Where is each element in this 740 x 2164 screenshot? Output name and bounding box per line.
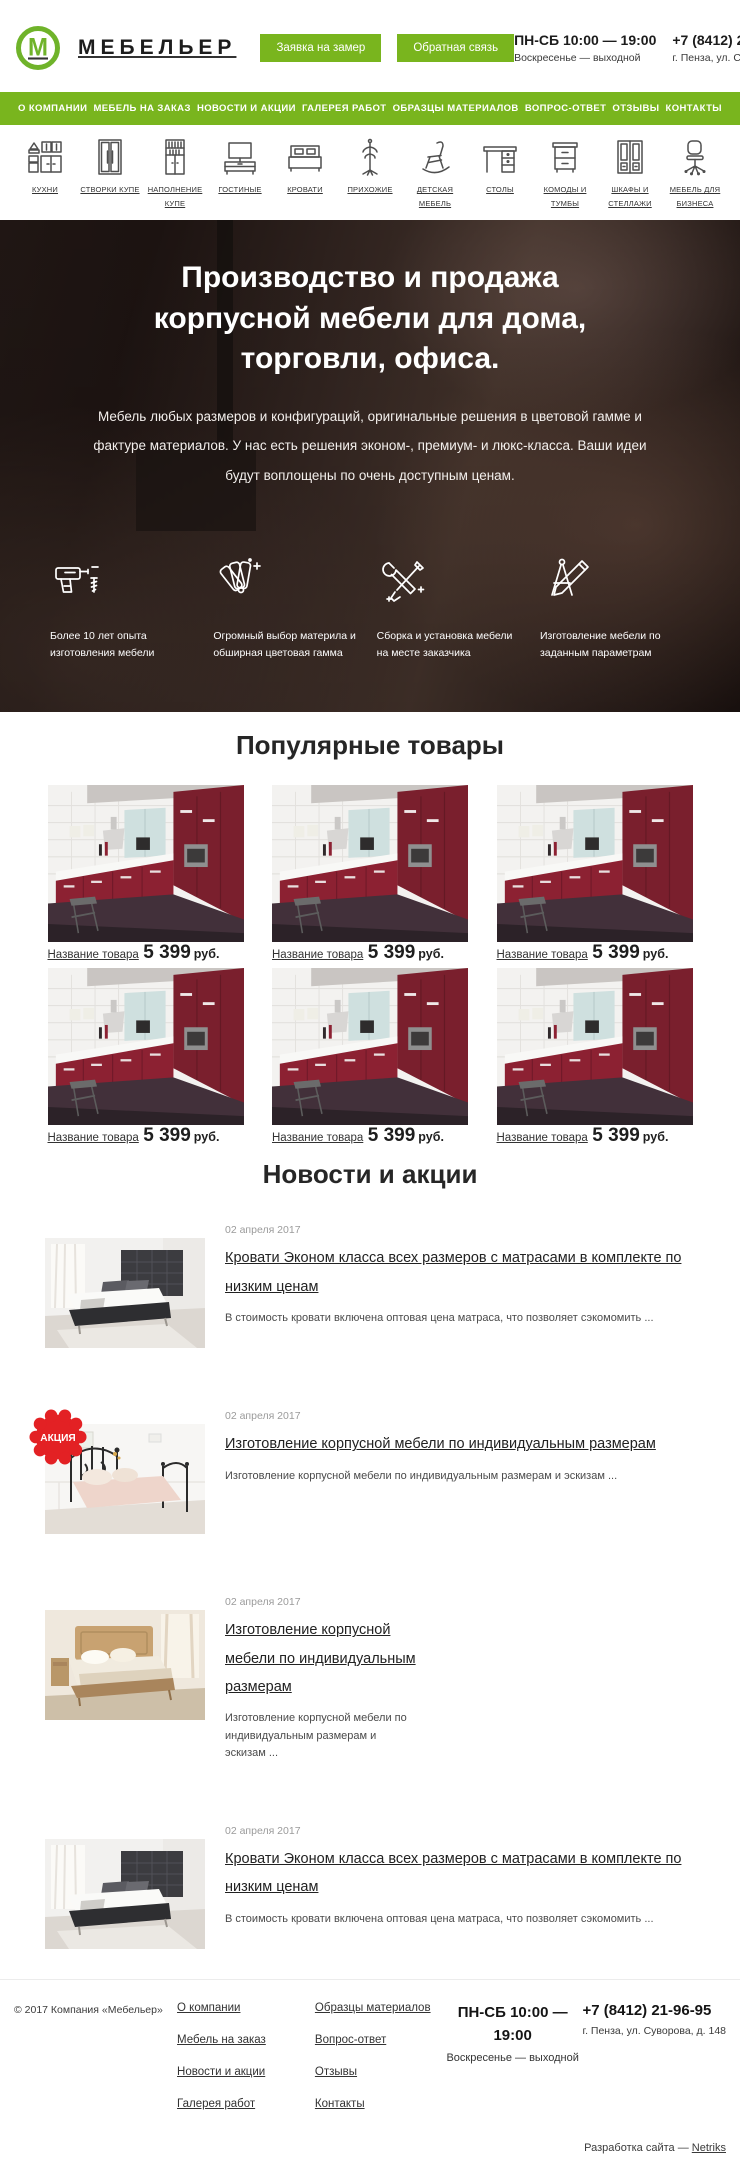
product-price: 5 399руб. — [368, 1128, 444, 1145]
popular-products-title: Популярные товары — [0, 730, 740, 761]
category-label: ДЕТСКАЯ МЕБЕЛЬ — [404, 183, 466, 210]
promo-badge-text: АКЦИЯ — [40, 1433, 75, 1444]
feature-label: Более 10 лет опыта изготовления мебели — [50, 628, 200, 664]
category-label: КУХНИ — [32, 183, 58, 197]
feature-label: Сборка и установка мебели на месте заказ… — [377, 628, 527, 664]
category-hallways[interactable]: ПРИХОЖИЕ — [339, 137, 401, 210]
footer-phone: +7 (8412) 21-96-95 — [583, 2002, 726, 2019]
footer-link-reviews[interactable]: Отзывы — [315, 2066, 453, 2078]
product-card[interactable]: Название товара 5 399руб. — [272, 785, 468, 942]
news-photo — [45, 1610, 205, 1720]
product-price: 5 399руб. — [368, 945, 444, 962]
product-name-link[interactable]: Название товара — [497, 949, 588, 961]
hero-subtitle: Мебель любых размеров и конфигураций, ор… — [90, 402, 650, 491]
product-name-link[interactable]: Название товара — [48, 1132, 139, 1144]
news-date: 02 апреля 2017 — [225, 1410, 695, 1422]
category-business-furniture[interactable]: МЕБЕЛЬ ДЛЯ БИЗНЕСА — [664, 137, 726, 210]
category-label: СТВОРКИ КУПЕ — [80, 183, 139, 197]
drafting-tools-icon — [540, 596, 596, 613]
news-excerpt: В стоимость кровати включена оптовая цен… — [225, 1911, 695, 1929]
footer-address: г. Пенза, ул. Суворова, д. 148 — [583, 2025, 726, 2037]
developer-credit-link[interactable]: Netriks — [692, 2142, 726, 2154]
working-hours-sub: Воскресенье — выходной — [514, 52, 656, 64]
product-price: 5 399руб. — [143, 945, 219, 962]
news-title: Новости и акции — [0, 1159, 740, 1190]
feature-assembly: Сборка и установка мебели на месте заказ… — [377, 553, 527, 664]
news-list: 02 апреля 2017 Кровати Эконом класса все… — [45, 1224, 695, 1949]
wardrobe-doors-icon — [90, 137, 130, 177]
news-section: Новости и акции 02 апреля 2017 Кровати Э… — [0, 1125, 740, 1949]
price-currency: руб. — [643, 1130, 669, 1144]
footer-working-hours: ПН-СБ 10:00 — 19:00 Воскресенье — выходн… — [443, 2002, 583, 2064]
bed-icon — [285, 137, 325, 177]
category-tables[interactable]: СТОЛЫ — [469, 137, 531, 210]
footer-links-col1: О компании Мебель на заказ Новости и акц… — [177, 2002, 315, 2130]
price-currency: руб. — [418, 1130, 444, 1144]
news-photo — [45, 1238, 205, 1348]
category-label: ПРИХОЖИЕ — [347, 183, 392, 197]
nav-item-faq[interactable]: ВОПРОС-ОТВЕТ — [525, 103, 606, 114]
product-photo — [272, 968, 468, 1125]
category-bar: КУХНИ СТВОРКИ КУПЕ НАПОЛНЕНИЕ КУПЕ ГОСТИ… — [0, 125, 740, 220]
logo[interactable]: М МЕБЕЛЬЕР — [16, 26, 236, 70]
logo-letter: М — [28, 35, 48, 60]
office-chair-icon — [675, 137, 715, 177]
news-item: 02 апреля 2017 Кровати Эконом класса все… — [45, 1825, 695, 1949]
brand-name: МЕБЕЛЬЕР — [78, 36, 236, 60]
working-hours: ПН-СБ 10:00 — 19:00 Воскресенье — выходн… — [514, 32, 656, 64]
hero-title-line: корпусной мебели для дома, — [154, 302, 587, 335]
price-value: 5 399 — [143, 942, 191, 963]
news-date: 02 апреля 2017 — [225, 1224, 695, 1236]
site-footer: © 2017 Компания «Мебельер» О компании Ме… — [0, 1979, 740, 2164]
category-label: СТОЛЫ — [486, 183, 514, 197]
price-value: 5 399 — [143, 1125, 191, 1146]
category-commodes[interactable]: КОМОДЫ И ТУМБЫ — [534, 137, 596, 210]
working-hours-main: ПН-СБ 10:00 — 19:00 — [514, 32, 656, 48]
site-header: М МЕБЕЛЬЕР Заявка на замер Обратная связ… — [0, 0, 740, 92]
shelving-icon — [155, 137, 195, 177]
product-price: 5 399руб. — [143, 1128, 219, 1145]
feature-label: Огромный выбор материла и обширная цвето… — [213, 628, 363, 664]
price-value: 5 399 — [368, 942, 416, 963]
news-excerpt: Изготовление корпусной мебели по индивид… — [225, 1710, 415, 1763]
features-row: Более 10 лет опыта изготовления мебели О… — [50, 553, 690, 664]
price-currency: руб. — [194, 947, 220, 961]
product-name-link[interactable]: Название товара — [272, 949, 363, 961]
popular-products-section: Популярные товары Название товар — [0, 712, 740, 1125]
product-card[interactable]: Название товара 5 399руб. — [48, 785, 244, 942]
hero-title-line: торговли, офиса. — [241, 342, 500, 375]
nav-item-news[interactable]: НОВОСТИ И АКЦИИ — [197, 103, 296, 114]
news-date: 02 апреля 2017 — [225, 1596, 695, 1608]
news-photo — [45, 1839, 205, 1949]
product-name-link[interactable]: Название товара — [48, 949, 139, 961]
footer-link-about[interactable]: О компании — [177, 2002, 315, 2014]
product-card[interactable]: Название товара 5 399руб. — [497, 968, 693, 1125]
footer-hours-sub: Воскресенье — выходной — [443, 2052, 583, 2064]
feature-custom-params: Изготовление мебели по заданным параметр… — [540, 553, 690, 664]
product-name-link[interactable]: Название товара — [272, 1132, 363, 1144]
news-photo: АКЦИЯ — [45, 1424, 205, 1534]
news-excerpt: Изготовление корпусной мебели по индивид… — [225, 1468, 695, 1486]
footer-link-faq[interactable]: Вопрос-ответ — [315, 2034, 453, 2046]
footer-hours-main: ПН-СБ 10:00 — 19:00 — [443, 2002, 583, 2047]
product-card[interactable]: Название товара 5 399руб. — [48, 968, 244, 1125]
footer-links-col2: Образцы материалов Вопрос-ответ Отзывы К… — [315, 2002, 453, 2130]
product-card[interactable]: Название товара 5 399руб. — [497, 785, 693, 942]
feature-label: Изготовление мебели по заданным параметр… — [540, 628, 690, 664]
product-photo — [48, 785, 244, 942]
category-label: НАПОЛНЕНИЕ КУПЕ — [144, 183, 206, 210]
news-date: 02 апреля 2017 — [225, 1825, 695, 1837]
main-nav: О КОМПАНИИ МЕБЕЛЬ НА ЗАКАЗ НОВОСТИ И АКЦ… — [0, 92, 740, 125]
nightstand-icon — [545, 137, 585, 177]
promo-badge: АКЦИЯ — [29, 1408, 87, 1466]
category-beds[interactable]: КРОВАТИ — [274, 137, 336, 210]
desk-icon — [480, 137, 520, 177]
nav-item-materials[interactable]: ОБРАЗЦЫ МАТЕРИАЛОВ — [393, 103, 519, 114]
developer-credit: Разработка сайта — Netriks — [584, 2142, 726, 2154]
copyright: © 2017 Компания «Мебельер» — [14, 2002, 177, 2016]
category-closet-filling[interactable]: НАПОЛНЕНИЕ КУПЕ — [144, 137, 206, 210]
news-item: 02 апреля 2017 Изготовление корпусной ме… — [45, 1596, 695, 1763]
color-palette-icon — [213, 596, 269, 613]
footer-link-materials[interactable]: Образцы материалов — [315, 2002, 453, 2014]
wardrobe-icon — [610, 137, 650, 177]
drill-icon — [50, 596, 106, 613]
hero-title: Производство и продажа корпусной мебели … — [135, 258, 605, 380]
footer-link-news[interactable]: Новости и акции — [177, 2066, 315, 2078]
price-currency: руб. — [418, 947, 444, 961]
price-currency: руб. — [643, 947, 669, 961]
category-living-rooms[interactable]: ГОСТИНЫЕ — [209, 137, 271, 210]
coat-rack-icon — [350, 137, 390, 177]
price-value: 5 399 — [592, 1125, 640, 1146]
price-currency: руб. — [194, 1130, 220, 1144]
news-item: АКЦИЯ 02 апреля 2017 Изготовление корпус… — [45, 1410, 695, 1534]
footer-link-custom-furniture[interactable]: Мебель на заказ — [177, 2034, 315, 2046]
product-photo — [272, 785, 468, 942]
price-value: 5 399 — [592, 942, 640, 963]
logo-circle-icon: М — [16, 26, 60, 70]
news-item: 02 апреля 2017 Кровати Эконом класса все… — [45, 1224, 695, 1348]
kids-chair-icon — [415, 137, 455, 177]
footer-link-gallery[interactable]: Галерея работ — [177, 2098, 315, 2110]
nav-item-contacts[interactable]: КОНТАКТЫ — [666, 103, 722, 114]
hero-banner: Производство и продажа корпусной мебели … — [0, 220, 740, 712]
tv-stand-icon — [220, 137, 260, 177]
tools-icon — [377, 596, 433, 613]
header-contacts: +7 (8412) 21-96-95 г. Пенза, ул. Суворов… — [672, 32, 740, 64]
news-title-link[interactable]: Изготовление корпусной мебели по индивид… — [225, 1616, 430, 1701]
products-grid: Название товара 5 399руб. — [48, 785, 693, 1125]
footer-contacts: +7 (8412) 21-96-95 г. Пенза, ул. Суворов… — [583, 2002, 726, 2037]
product-photo — [497, 785, 693, 942]
nav-item-reviews[interactable]: ОТЗЫВЫ — [612, 103, 659, 114]
category-label: КОМОДЫ И ТУМБЫ — [534, 183, 596, 210]
kitchen-icon — [25, 137, 65, 177]
category-kitchens[interactable]: КУХНИ — [14, 137, 76, 210]
news-title-link[interactable]: Кровати Эконом класса всех размеров с ма… — [225, 1244, 695, 1301]
feedback-button[interactable]: Обратная связь — [397, 34, 514, 62]
news-excerpt: В стоимость кровати включена оптовая цен… — [225, 1310, 695, 1328]
category-label: ШКАФЫ И СТЕЛЛАЖИ — [599, 183, 661, 210]
hero-title-line: Производство и продажа — [181, 261, 558, 294]
category-label: ГОСТИНЫЕ — [218, 183, 261, 197]
feature-materials: Огромный выбор материла и обширная цвето… — [213, 553, 363, 664]
developer-credit-prefix: Разработка сайта — — [584, 2142, 692, 2154]
product-price: 5 399руб. — [592, 1128, 668, 1145]
category-label: КРОВАТИ — [287, 183, 323, 197]
measure-request-button[interactable]: Заявка на замер — [260, 34, 381, 62]
category-sliding-doors[interactable]: СТВОРКИ КУПЕ — [79, 137, 141, 210]
feature-experience: Более 10 лет опыта изготовления мебели — [50, 553, 200, 664]
product-card[interactable]: Название товара 5 399руб. — [272, 968, 468, 1125]
footer-link-contacts[interactable]: Контакты — [315, 2098, 453, 2110]
category-label: МЕБЕЛЬ ДЛЯ БИЗНЕСА — [664, 183, 726, 210]
product-price: 5 399руб. — [592, 945, 668, 962]
news-title-link[interactable]: Изготовление корпусной мебели по индивид… — [225, 1430, 656, 1458]
news-title-link[interactable]: Кровати Эконом класса всех размеров с ма… — [225, 1845, 695, 1902]
product-name-link[interactable]: Название товара — [497, 1132, 588, 1144]
category-wardrobes[interactable]: ШКАФЫ И СТЕЛЛАЖИ — [599, 137, 661, 210]
nav-item-about[interactable]: О КОМПАНИИ — [18, 103, 87, 114]
nav-item-gallery[interactable]: ГАЛЕРЕЯ РАБОТ — [302, 103, 387, 114]
nav-item-custom-furniture[interactable]: МЕБЕЛЬ НА ЗАКАЗ — [93, 103, 190, 114]
category-kids-furniture[interactable]: ДЕТСКАЯ МЕБЕЛЬ — [404, 137, 466, 210]
price-value: 5 399 — [368, 1125, 416, 1146]
product-photo — [497, 968, 693, 1125]
company-address: г. Пенза, ул. Суворова, д. 148 — [672, 52, 740, 64]
product-photo — [48, 968, 244, 1125]
phone-number: +7 (8412) 21-96-95 — [672, 32, 740, 48]
